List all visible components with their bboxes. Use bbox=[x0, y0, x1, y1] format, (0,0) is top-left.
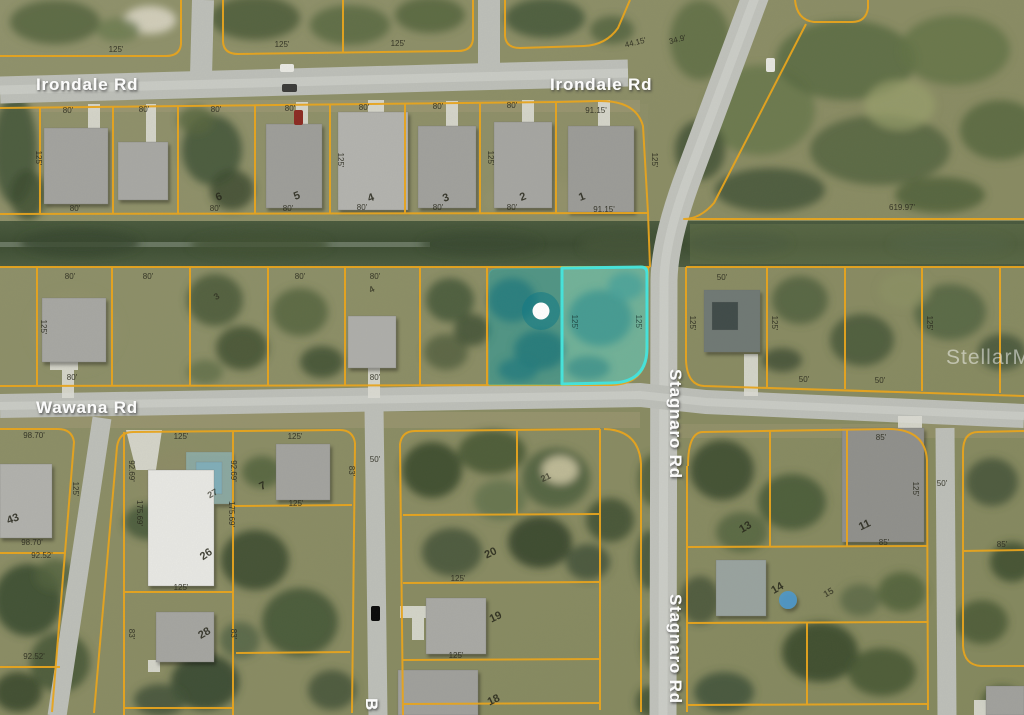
aerial-map-view[interactable]: 125' 125' 125' 44.15' 34.9' 619.97' 80' … bbox=[0, 0, 1024, 715]
house bbox=[986, 686, 1024, 715]
dim-label: 83' bbox=[229, 629, 238, 640]
dim-label: 80' bbox=[507, 203, 518, 212]
house bbox=[118, 142, 168, 200]
dim-label: 125' bbox=[925, 316, 934, 331]
house bbox=[42, 298, 106, 362]
dim-label: 50' bbox=[937, 479, 948, 488]
dim-label: 80' bbox=[70, 204, 81, 213]
dim-label: 83' bbox=[127, 629, 136, 640]
road-label-partial-bottom: B bbox=[362, 698, 381, 711]
dim-label: 125' bbox=[336, 153, 345, 168]
dim-label: 50' bbox=[875, 376, 886, 385]
dim-label: 91.15' bbox=[593, 205, 615, 214]
dim-label: 125' bbox=[650, 153, 659, 168]
dim-label: 80' bbox=[433, 203, 444, 212]
dim-label: 85' bbox=[997, 540, 1008, 549]
listing-highlight[interactable] bbox=[489, 267, 647, 385]
road-label-wawana: Wawana Rd bbox=[36, 398, 138, 417]
north-road-1 bbox=[201, 0, 203, 76]
dim-label: 125' bbox=[770, 316, 779, 331]
dim-label: 125' bbox=[71, 482, 80, 497]
dim-label: 125' bbox=[486, 151, 495, 166]
dim-label: 80' bbox=[139, 105, 150, 114]
dim-label: 80' bbox=[143, 272, 154, 281]
dim-label: 125' bbox=[39, 320, 48, 335]
dim-label: 80' bbox=[65, 272, 76, 281]
car bbox=[766, 58, 775, 72]
house bbox=[716, 560, 766, 616]
dim-label: 80' bbox=[295, 272, 306, 281]
dim-label: 92.69' bbox=[229, 460, 238, 482]
dim-label: 619.97' bbox=[889, 203, 915, 212]
road-label-irondale-west: Irondale Rd bbox=[36, 75, 138, 94]
dim-label: 175.69' bbox=[227, 501, 236, 527]
dim-label: 80' bbox=[285, 104, 296, 113]
dim-label: 50' bbox=[370, 455, 381, 464]
dim-label: 80' bbox=[357, 203, 368, 212]
dim-label: 80' bbox=[63, 106, 74, 115]
dim-label: 125' bbox=[911, 482, 920, 497]
dim-label: 98.70' bbox=[23, 431, 45, 440]
stellar-mls-watermark: StellarMLS bbox=[946, 346, 1024, 369]
dim-label: 125' bbox=[570, 315, 579, 330]
road-label-irondale-east: Irondale Rd bbox=[550, 75, 652, 94]
dim-label: 125' bbox=[275, 40, 290, 49]
house bbox=[0, 464, 52, 538]
car bbox=[371, 606, 380, 621]
dim-label: 175.69' bbox=[135, 500, 144, 526]
dim-label: 125' bbox=[688, 316, 697, 331]
house bbox=[348, 316, 396, 368]
dim-label: 125' bbox=[288, 432, 303, 441]
dim-label: 125' bbox=[634, 315, 643, 330]
dim-label: 125' bbox=[451, 574, 466, 583]
dim-label: 125' bbox=[289, 499, 304, 508]
location-marker-dot[interactable] bbox=[533, 303, 550, 320]
dim-label: 50' bbox=[717, 273, 728, 282]
dim-label: 92.52' bbox=[31, 551, 53, 560]
road-label-stagnaro-lower: Stagnaro Rd bbox=[666, 594, 685, 704]
dim-label: 125' bbox=[34, 151, 43, 166]
solar-panels bbox=[712, 302, 738, 330]
house bbox=[44, 128, 108, 204]
house bbox=[426, 598, 486, 654]
dim-label: 125' bbox=[391, 39, 406, 48]
dim-label: 80' bbox=[370, 373, 381, 382]
car bbox=[282, 84, 297, 92]
road-label-stagnaro-upper: Stagnaro Rd bbox=[666, 369, 685, 479]
pool bbox=[779, 591, 797, 609]
dim-label: 125' bbox=[174, 432, 189, 441]
dim-label: 80' bbox=[283, 204, 294, 213]
house bbox=[148, 470, 214, 586]
dim-label: 125' bbox=[174, 583, 189, 592]
dim-label: 80' bbox=[67, 373, 78, 382]
south-road-3 bbox=[945, 428, 947, 715]
dim-label: 83' bbox=[347, 466, 356, 477]
house bbox=[276, 444, 330, 500]
dim-label: 125' bbox=[449, 651, 464, 660]
house bbox=[398, 670, 478, 715]
house bbox=[568, 126, 634, 212]
dim-label: 85' bbox=[879, 538, 890, 547]
dim-label: 80' bbox=[433, 102, 444, 111]
dim-label: 50' bbox=[799, 375, 810, 384]
dim-label: 80' bbox=[507, 101, 518, 110]
car bbox=[294, 110, 303, 125]
dim-label: 125' bbox=[109, 45, 124, 54]
dim-label: 80' bbox=[370, 272, 381, 281]
dim-label: 80' bbox=[210, 204, 221, 213]
dim-label: 98.70' bbox=[21, 538, 43, 547]
dim-label: 92.69' bbox=[127, 460, 136, 482]
dim-label: 80' bbox=[359, 103, 370, 112]
dim-label: 80' bbox=[211, 105, 222, 114]
dim-label: 85' bbox=[876, 433, 887, 442]
car bbox=[280, 64, 294, 72]
dim-label: 92.52' bbox=[23, 652, 45, 661]
south-road-2 bbox=[374, 407, 378, 715]
dim-label: 91.15' bbox=[585, 106, 607, 115]
